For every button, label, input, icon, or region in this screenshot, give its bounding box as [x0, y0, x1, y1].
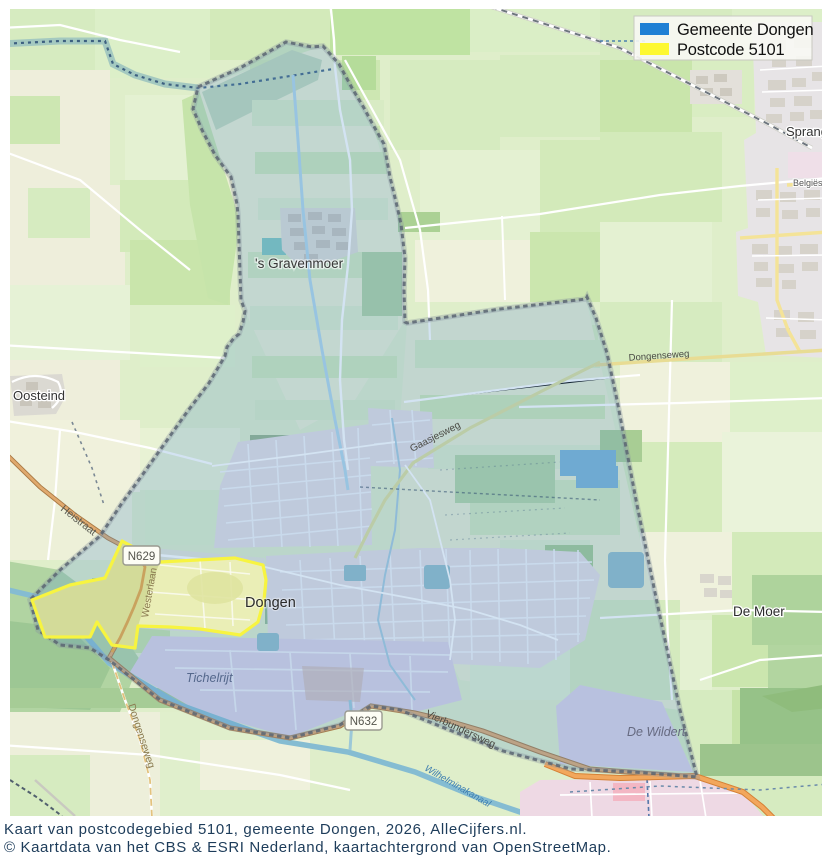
svg-text:'s Gravenmoer: 's Gravenmoer [255, 256, 344, 271]
svg-text:Gemeente Dongen: Gemeente Dongen [677, 21, 813, 39]
svg-text:De Moer: De Moer [733, 604, 785, 619]
svg-text:De Wildert: De Wildert [627, 725, 686, 739]
svg-text:Dongen: Dongen [245, 595, 296, 611]
svg-text:Sprang: Sprang [786, 124, 828, 139]
svg-text:Postcode 5101: Postcode 5101 [677, 41, 785, 59]
svg-text:Belgiës: Belgiës [793, 178, 823, 188]
svg-text:Oosteind: Oosteind [13, 388, 65, 403]
svg-text:N629: N629 [128, 551, 156, 563]
svg-text:N632: N632 [350, 716, 378, 728]
svg-text:Tichelrijt: Tichelrijt [186, 671, 233, 685]
